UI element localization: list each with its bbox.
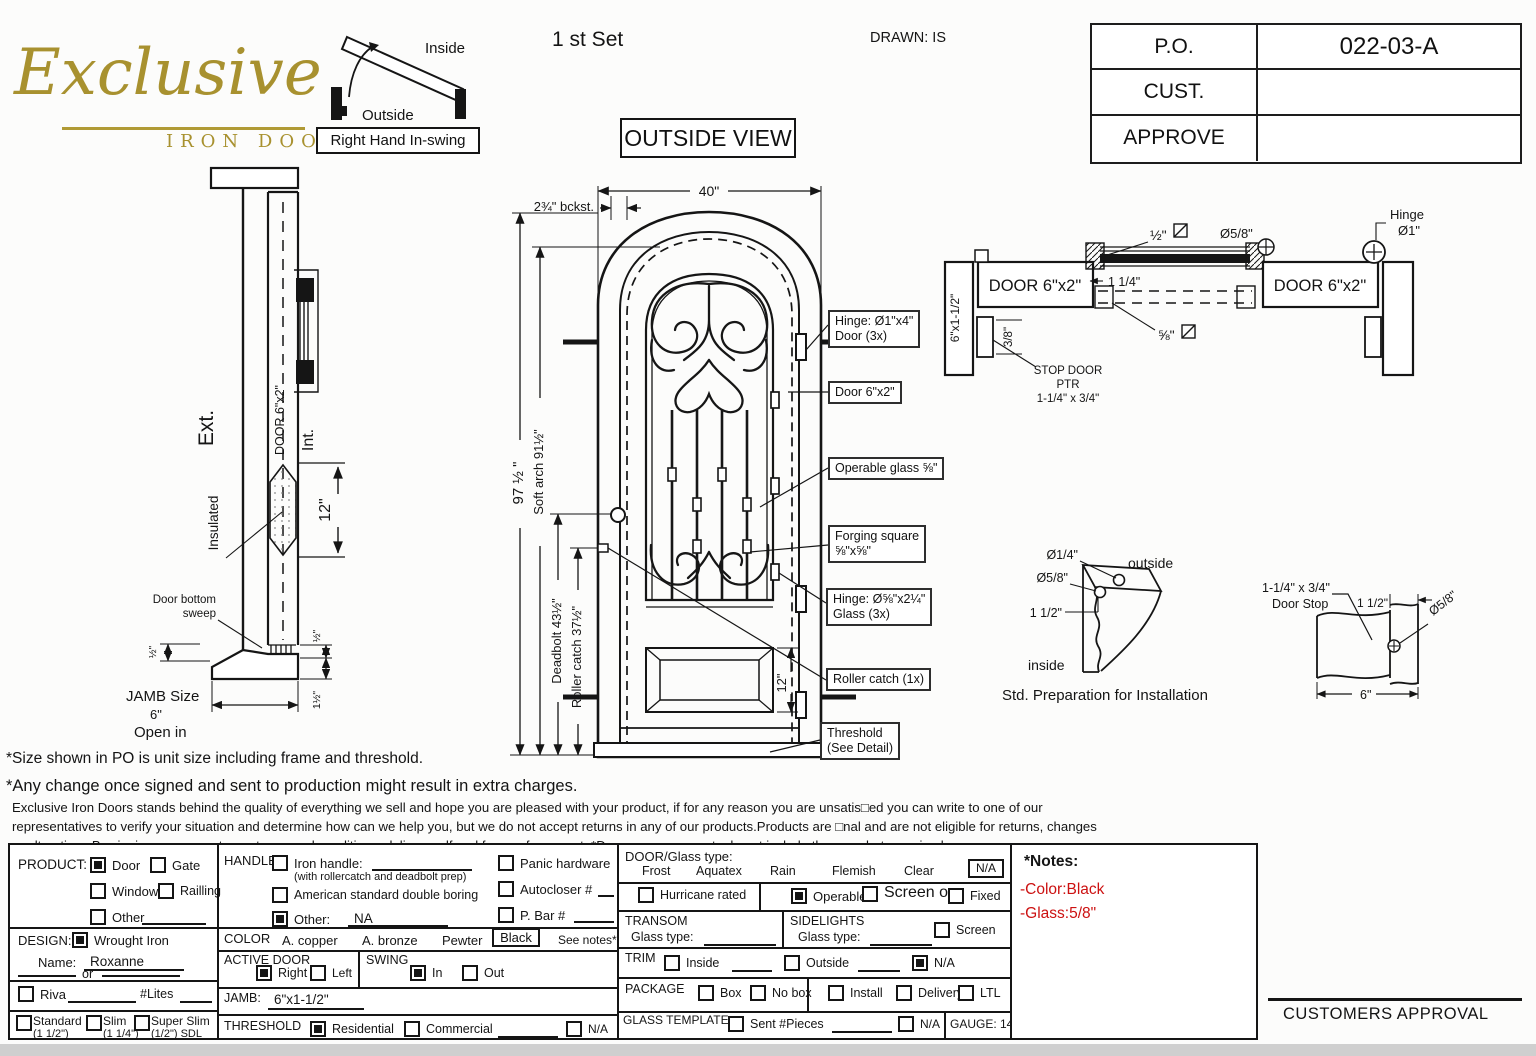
seal-bar	[1100, 254, 1250, 263]
stop-block-left	[977, 317, 993, 357]
transom-glass-label: Glass type:	[631, 930, 694, 944]
dia-58-leader	[1400, 624, 1428, 643]
checkbox-riva[interactable]	[18, 986, 34, 1002]
po-label: P.O.	[1092, 25, 1258, 68]
checkbox-threshold-na[interactable]	[566, 1021, 582, 1037]
trim-inside-blank[interactable]	[732, 970, 772, 972]
notes-title: *Notes:	[1024, 853, 1078, 871]
bottom-panel-inner	[660, 660, 759, 700]
bar-collars	[668, 468, 751, 553]
checkbox-sidelights-screen[interactable]	[934, 922, 950, 938]
threshold-profile	[212, 650, 298, 679]
standard-sub: (1 1/2")	[33, 1028, 69, 1040]
glass-stop-top	[296, 278, 314, 302]
checkbox-install[interactable]	[828, 985, 844, 1001]
dim-112-label: 1 1/2"	[1030, 606, 1062, 620]
backset-label: 2¾" bckst.	[534, 199, 594, 214]
commercial-blank[interactable]	[498, 1036, 558, 1038]
callout-leaders	[608, 325, 828, 752]
trim-na-label: N/A	[934, 956, 955, 970]
glass-na-selected[interactable]: N/A	[968, 859, 1004, 878]
ltl-label: LTL	[980, 986, 1001, 1000]
sent-pieces-label: Sent #Pieces	[750, 1017, 824, 1031]
in-label: In	[432, 966, 442, 980]
trim-outside-label: Outside	[806, 956, 849, 970]
fixed-label: Fixed	[970, 889, 1001, 903]
dim-ext-right	[300, 645, 332, 679]
or-rule-right	[102, 975, 180, 977]
callout-hinge-door-line1: Hinge: Ø1"x4"	[835, 314, 913, 329]
dim-half-left-label: ½"	[147, 645, 159, 658]
callout-hinge-door: Hinge: Ø1"x4" Door (3x)	[828, 310, 920, 348]
approve-label: APPROVE	[1092, 116, 1258, 161]
company-logo: Exclusive	[14, 36, 322, 110]
jamb-board	[1317, 604, 1418, 684]
form-grid-line	[217, 845, 219, 1038]
transom-glass-blank[interactable]	[704, 944, 776, 946]
right-jamb-block	[455, 89, 466, 119]
transom-label: TRANSOM	[625, 914, 688, 928]
std-prep-detail: Ø1/4" Ø5/8" 1 1/2" outside inside Std. P…	[1000, 540, 1250, 710]
callout-threshold: Threshold (See Detail)	[820, 722, 900, 760]
riva-blank[interactable]	[68, 1001, 136, 1003]
nobox-label: No box	[772, 986, 812, 1000]
jamb-label: JAMB:	[224, 991, 261, 1005]
checkbox-box[interactable]	[698, 985, 714, 1001]
dim-58-label: ⅝"	[1158, 327, 1175, 343]
ext-label: Ext.	[195, 410, 218, 446]
wrought-iron-label: Wrought Iron	[94, 933, 169, 948]
int-label: Int.	[300, 429, 317, 451]
form-grid-line	[617, 910, 1010, 912]
stop-block-right	[1365, 317, 1381, 357]
checkbox-ltl[interactable]	[958, 985, 974, 1001]
dim-soft-arch-label: Soft arch 91½"	[531, 429, 546, 515]
callout-hinge-glass: Hinge: Ø⅝"x2¼" Glass (3x)	[826, 588, 932, 626]
commercial-label: Commercial	[426, 1022, 493, 1036]
stop-door-line1: STOP DOOR	[1034, 365, 1103, 377]
autocloser-label: Autocloser #	[520, 882, 592, 897]
po-row: P.O. 022-03-A	[1092, 25, 1520, 70]
panic-label: Panic hardware	[520, 856, 610, 871]
checkbox-sent-pieces[interactable]	[728, 1016, 744, 1032]
threshold-bar	[594, 743, 827, 757]
dim-38-label: 3/8"	[1003, 327, 1015, 347]
handle-other-label: Other:	[294, 912, 330, 927]
handle-other-blank[interactable]	[348, 925, 448, 927]
sweep-leader	[218, 620, 262, 648]
checkbox-commercial[interactable]	[404, 1021, 420, 1037]
glass-stop-bottom	[296, 360, 314, 384]
form-grid-line	[617, 947, 1010, 949]
iron-handle-sub: (with rollercatch and deadbolt prep)	[294, 871, 466, 883]
head-horizontal-section: 6"x1-1/2" DOOR 6"x2" 3/8" STOP DOOR PTR …	[930, 185, 1536, 435]
callout-roller-catch: Roller catch (1x)	[826, 668, 931, 691]
set-label: 1 st Set	[552, 28, 623, 52]
riva-label: Riva	[40, 987, 66, 1002]
sidelights-glass-blank[interactable]	[870, 944, 932, 946]
color-pewter[interactable]: Pewter	[442, 933, 482, 948]
callout-hinge-glass-line1: Hinge: Ø⅝"x2¼"	[833, 592, 925, 607]
trim-inside-label: Inside	[686, 956, 719, 970]
callout-forging-line1: Forging square	[835, 529, 919, 544]
door-left-label: DOOR 6"x2"	[989, 277, 1082, 295]
left-clip	[975, 250, 988, 262]
logo-underline	[62, 127, 305, 130]
customers-approval-label: CUSTOMERS APPROVAL	[1283, 1005, 1489, 1024]
gate-option-label: Gate	[172, 858, 200, 873]
insulated-core	[270, 465, 296, 555]
color-see-notes: See notes*	[558, 933, 617, 947]
dia-14-label: Ø1/4"	[1046, 548, 1078, 562]
checkbox-american-boring[interactable]	[272, 887, 288, 903]
sidelights-screen-label: Screen	[956, 923, 996, 937]
install-label: Install	[850, 986, 883, 1000]
dim-one-half-label: 1½"	[311, 691, 323, 710]
bottom-panel-bevels	[646, 648, 773, 712]
jamb-blank[interactable]	[268, 1008, 364, 1010]
screen-or-label: Screen or	[884, 884, 953, 902]
square-symbol-top	[1174, 224, 1187, 237]
hole-quarter	[1114, 575, 1125, 586]
threshold-na-label: N/A	[588, 1022, 608, 1036]
order-form: PRODUCT: Door Gate Window Railling Other…	[8, 843, 1012, 1040]
callout-operable-glass: Operable glass ⅝"	[828, 457, 944, 480]
checkbox-trim-na[interactable]	[912, 955, 928, 971]
checkbox-door[interactable]	[90, 857, 106, 873]
checkbox-panic[interactable]	[498, 855, 514, 871]
hatch-block-left	[1086, 243, 1104, 269]
checkbox-trim-outside[interactable]	[784, 955, 800, 971]
dia-58-label: Ø5/8"	[1426, 588, 1459, 618]
dim-half-label: ½"	[1150, 227, 1167, 243]
stop-door-line2: PTR	[1057, 379, 1080, 391]
callout-forging-line2: ⅝"x⅝"	[835, 544, 919, 559]
hinge-dia-label: Ø1"	[1398, 223, 1420, 238]
forging-bars	[672, 410, 747, 600]
page-edge-strip	[0, 1044, 1536, 1056]
glass-flemish[interactable]: Flemish	[832, 864, 876, 878]
checkbox-handle-other[interactable]	[272, 911, 288, 927]
trim-label: TRIM	[625, 951, 656, 965]
checkbox-iron-handle[interactable]	[272, 855, 288, 871]
sweep-label-2: sweep	[183, 608, 216, 620]
hole-fiveeighths	[1095, 587, 1106, 598]
hinge-label: Hinge	[1390, 207, 1424, 222]
right-jamb-profile	[1383, 262, 1413, 375]
checkbox-left[interactable]	[310, 965, 326, 981]
drawing-sheet: Exclusive IRON DOORS Inside Outside Righ…	[0, 0, 1536, 1056]
super-slim-sub: (1/2") SDL	[151, 1028, 202, 1040]
residential-label: Residential	[332, 1022, 394, 1036]
open-door-end-right	[1237, 286, 1255, 308]
or-rule-left	[18, 975, 76, 977]
square-symbol-bottom	[1182, 325, 1195, 338]
checkbox-slim[interactable]	[86, 1015, 102, 1031]
door-profile-label: DOOR 6"x2"	[273, 385, 287, 455]
dim-12-label: 12"	[317, 498, 334, 521]
handle-other-value[interactable]: NA	[354, 911, 373, 926]
notes-color: -Color:Black	[1020, 881, 1104, 899]
inside-label: inside	[1028, 657, 1065, 673]
color-copper[interactable]: A. copper	[282, 933, 338, 948]
window-option-label: Window	[112, 884, 158, 899]
dim-58-leader	[1112, 303, 1155, 330]
open-in-label: Open in	[134, 724, 187, 741]
cust-value[interactable]	[1258, 70, 1520, 113]
checkbox-pbar[interactable]	[498, 907, 514, 923]
box-label: Box	[720, 986, 742, 1000]
callout-door: Door 6"x2"	[828, 381, 902, 404]
glass-frost[interactable]: Frost	[642, 864, 670, 878]
glass-template-label: GLASS TEMPLATE	[623, 1013, 729, 1027]
form-grid-line	[944, 1011, 946, 1038]
door-right-label: DOOR 6"x2"	[1274, 277, 1367, 295]
callout-hinge-door-line2: Door (3x)	[835, 329, 913, 344]
dia-58-label: Ø5/8"	[1036, 571, 1068, 585]
dim-97-label: 97 ½ "	[510, 462, 527, 505]
dim-6-label: 6"	[1360, 688, 1371, 702]
dim-114-label: 1 1/4"	[1108, 275, 1140, 289]
checkbox-delivery[interactable]	[896, 985, 912, 1001]
lites-label: #Lites	[140, 987, 173, 1001]
left-label: Left	[332, 966, 352, 980]
stop-name-label: Door Stop	[1272, 597, 1328, 611]
disclaimer-line2: *Any change once signed and sent to prod…	[6, 777, 577, 796]
or-label: or	[82, 967, 93, 981]
disclaimer-para2: representatives to verify your situation…	[12, 819, 1097, 834]
callout-hinge-glass-line2: Glass (3x)	[833, 607, 925, 622]
checkbox-gate[interactable]	[150, 857, 166, 873]
roller-catch-mark	[598, 544, 608, 552]
door-option-label: Door	[112, 858, 140, 873]
form-grid-line	[782, 910, 784, 947]
jamb-profile-label: 6"x1-1/2"	[948, 294, 962, 343]
insulated-label: Insulated	[206, 496, 221, 551]
form-grid-line	[759, 882, 761, 910]
form-grid-line	[217, 950, 617, 952]
bottom-panel-outer	[646, 648, 773, 712]
package-label: PACKAGE	[625, 982, 685, 996]
name-label: Name:	[38, 955, 76, 970]
form-grid-line	[10, 980, 217, 982]
glass-rain[interactable]: Rain	[770, 864, 796, 878]
checkbox-in[interactable]	[410, 965, 426, 981]
jamb-value[interactable]: 6"x1-1/2"	[274, 992, 329, 1007]
checkbox-nobox[interactable]	[750, 985, 766, 1001]
std-prep-caption: Std. Preparation for Installation	[1002, 687, 1208, 704]
form-grid-line	[358, 950, 360, 987]
left-jamb-step	[342, 106, 347, 116]
color-black-selected[interactable]: Black	[492, 928, 540, 947]
american-boring-label: American standard double boring	[294, 888, 478, 902]
cust-label: CUST.	[1092, 70, 1258, 113]
inside-label: Inside	[425, 40, 465, 57]
checkbox-trim-inside[interactable]	[664, 955, 680, 971]
checkbox-residential[interactable]	[310, 1021, 326, 1037]
approve-row: APPROVE	[1092, 116, 1520, 161]
left-jamb-block	[331, 87, 342, 120]
operable-label: Operable	[813, 889, 866, 904]
checkbox-autocloser[interactable]	[498, 881, 514, 897]
jamb-dim-ext	[212, 681, 298, 712]
drawn-label: DRAWN: IS	[870, 30, 946, 46]
delivery-label: Delivery	[918, 986, 963, 1000]
dim-40-label: 40"	[699, 183, 720, 199]
form-grid-line	[217, 987, 617, 989]
backset-ticks	[611, 196, 627, 220]
sent-pieces-blank[interactable]	[832, 1031, 892, 1033]
product-label: PRODUCT:	[18, 857, 87, 872]
color-label: COLOR	[224, 931, 270, 946]
color-bronze[interactable]: A. bronze	[362, 933, 418, 948]
pbar-label: P. Bar #	[520, 908, 565, 923]
open-door-end-left	[1095, 286, 1113, 308]
disclaimer-line1: *Size shown in PO is unit size including…	[6, 750, 423, 768]
sweep-label-1: Door bottom	[153, 594, 216, 606]
lites-blank[interactable]	[180, 1001, 212, 1003]
dim-deadbolt-label: Deadbolt 43½"	[549, 598, 564, 684]
checkbox-template-na[interactable]	[898, 1016, 914, 1032]
checkbox-operable[interactable]	[791, 888, 807, 904]
door-glass-label: DOOR/Glass type:	[625, 849, 733, 864]
hinge-leader	[1376, 223, 1386, 240]
outside-view-title: OUTSIDE VIEW	[620, 118, 796, 158]
name-blank[interactable]	[84, 969, 184, 971]
checkbox-out[interactable]	[462, 965, 478, 981]
open-door-dashed	[1098, 291, 1252, 303]
hurricane-label: Hurricane rated	[660, 888, 746, 902]
cust-row: CUST.	[1092, 70, 1520, 115]
po-value[interactable]: 022-03-A	[1258, 25, 1520, 68]
callout-threshold-line2: (See Detail)	[827, 741, 893, 756]
callout-forging-square: Forging square ⅝"x⅝"	[828, 525, 926, 563]
pbar-blank[interactable]	[574, 921, 614, 923]
form-grid-line	[10, 1010, 217, 1012]
jamb-size-value: 6"	[150, 707, 162, 722]
outside-label: outside	[1128, 555, 1173, 571]
po-table: P.O. 022-03-A CUST. APPROVE	[1090, 23, 1522, 164]
standard-label: Standard	[33, 1014, 82, 1028]
checkbox-window[interactable]	[90, 883, 106, 899]
dia-58-label: Ø5/8"	[1220, 226, 1253, 241]
sidelights-label: SIDELIGHTS	[790, 914, 864, 928]
railing-option-label: Railling	[180, 884, 221, 898]
deadbolt-circle	[611, 508, 625, 522]
dim-panel-label: 12"	[774, 673, 789, 692]
checkbox-other-product[interactable]	[90, 909, 106, 925]
door-stop-detail: 1 1/2" Ø5/8" 6" 1-1/4" x 3/4" Door Stop	[1250, 555, 1536, 705]
glass-clear[interactable]: Clear	[904, 864, 934, 878]
jamb-vertical-section: 12" Ext. Int. DOOR 6"x2" Insulated Door …	[126, 150, 436, 760]
notes-glass: -Glass:5/8"	[1020, 905, 1096, 923]
glass-panes	[300, 302, 308, 360]
signature-line[interactable]	[1268, 998, 1522, 1001]
form-grid-line	[617, 977, 1010, 979]
checkbox-standard[interactable]	[16, 1015, 32, 1031]
right-label: Right	[278, 966, 307, 980]
approve-value[interactable]	[1258, 116, 1520, 161]
glass-aquatex[interactable]: Aquatex	[696, 864, 742, 878]
dim-112-lines	[1065, 597, 1098, 612]
super-slim-label: Super Slim	[151, 1014, 210, 1028]
stop-door-line3: 1-1/4" x 3/4"	[1037, 393, 1100, 405]
template-na-label: N/A	[920, 1017, 940, 1031]
dim-half-right-label: ½"	[311, 629, 323, 642]
iron-handle-label: Iron handle:	[294, 856, 363, 871]
outside-label: Outside	[362, 107, 414, 124]
dim-112-label: 1 1/2"	[1357, 596, 1388, 610]
form-grid-line	[217, 1014, 617, 1016]
design-label: DESIGN:	[18, 933, 71, 948]
handle-label: HANDLE	[224, 853, 277, 868]
out-label: Out	[484, 966, 504, 980]
swing-label: SWING	[366, 953, 408, 967]
jamb-size-label: JAMB Size	[126, 688, 199, 705]
sidelights-glass-label: Glass type:	[798, 930, 861, 944]
checkbox-hurricane[interactable]	[638, 887, 654, 903]
checkbox-railing[interactable]	[158, 883, 174, 899]
name-value[interactable]: Roxanne	[90, 954, 144, 969]
notes-panel: *Notes: -Color:Black -Glass:5/8"	[1010, 843, 1258, 1040]
callout-threshold-line1: Threshold	[827, 726, 893, 741]
checkbox-fixed[interactable]	[948, 888, 964, 904]
autocloser-blank[interactable]	[598, 895, 614, 897]
dim-roller-label: Roller catch 37½"	[569, 606, 584, 709]
head-cap	[211, 168, 298, 188]
checkbox-wrought-iron[interactable]	[72, 932, 88, 948]
stop-size-label: 1-1/4" x 3/4"	[1262, 581, 1330, 595]
form-grid-line	[617, 845, 619, 1038]
checkbox-screen-or[interactable]	[862, 886, 878, 902]
threshold-label: THRESHOLD	[224, 1019, 301, 1033]
disclaimer-para1: Exclusive Iron Doors stands behind the q…	[12, 800, 1043, 815]
slim-label: Slim	[103, 1014, 126, 1028]
checkbox-right[interactable]	[256, 965, 272, 981]
checkbox-super-slim[interactable]	[134, 1015, 150, 1031]
other-product-blank[interactable]	[142, 923, 206, 925]
other-product-label: Other	[112, 910, 145, 925]
trim-outside-blank[interactable]	[858, 970, 900, 972]
gauge-label: GAUGE: 14	[950, 1017, 1013, 1031]
